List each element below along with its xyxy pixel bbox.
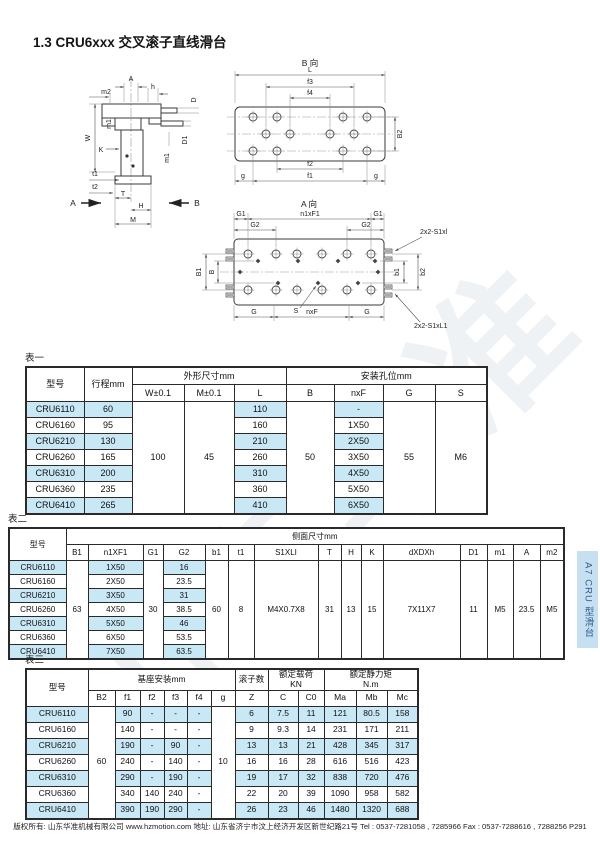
table-section-2: 表二 型号侧面尺寸mmB1n1XF1G1G2b1t1S1XLITHKdXDXhD… [8,511,565,660]
dim-label: D [191,97,198,102]
table-cell: 158 [387,706,418,722]
table-cell: 1090 [324,786,356,802]
table-cell: - [187,770,211,786]
table-cell: 23.5 [163,575,205,589]
table-cell: 32 [298,770,324,786]
table-cell: CRU6260 [26,450,84,466]
table-cell: 21 [298,738,324,754]
table-cell: 958 [356,786,387,802]
table-cell: S [435,385,487,402]
dim-label: h [151,84,155,91]
dim-label: G1 [236,211,245,218]
table-section-1: 表一 型号行程mm外形尺寸mm安装孔位mmW±0.1M±0.1LBnxFGSCR… [25,350,488,515]
table-cell: B2 [88,690,115,706]
table-cell: 16 [163,561,205,575]
table-cell: 30 [143,561,163,660]
table-cell: 428 [324,738,356,754]
spec-table: 型号行程mm外形尺寸mm安装孔位mmW±0.1M±0.1LBnxFGSCRU61… [25,366,488,515]
table-cell: 安装孔位mm [286,367,487,385]
table-cell: B1 [66,545,88,561]
table-cell: 23.5 [513,561,540,660]
table-cell: dXDXh [383,545,460,561]
table-cell: CRU6360 [26,786,88,802]
table-cell: B [286,385,334,402]
table-cell: 8 [228,561,254,660]
dim-label: m1 [164,153,171,163]
table-cell: 1X50 [334,418,383,434]
view-a-title: A 向 [301,199,317,209]
table-cell: 15 [361,561,383,660]
table-cell: 45 [184,402,234,515]
table-row: 型号行程mm外形尺寸mm安装孔位mm [26,367,487,385]
table-cell: CRU6260 [26,754,88,770]
table-cell: 190 [164,770,187,786]
table-cell: 90 [164,738,187,754]
table-cell: 390 [115,802,140,819]
table-cell: 5X50 [334,482,383,498]
table-cell: 4X50 [334,466,383,482]
table-cell: 423 [387,754,418,770]
table-row: CRU6110601004511050-55M6 [26,402,487,418]
table-cell: 60 [205,561,228,660]
table-cell: 4X50 [88,603,143,617]
table-cell: 516 [356,754,387,770]
dim-label: m1 [106,119,113,129]
table-cell: 外形尺寸mm [132,367,286,385]
table-cell: 22 [235,786,268,802]
table-cell: 340 [115,786,140,802]
table-cell: 240 [164,786,187,802]
table-cell: 行程mm [84,367,132,402]
table-cell: 165 [84,450,132,466]
table-cell: m1 [487,545,513,561]
view-b-drawing: B 向 L f3 f4 B2 f2 f1 g g [213,57,408,189]
table-cell: 39 [298,786,324,802]
table-cell: CRU6110 [9,561,66,575]
table-cell: K [361,545,383,561]
table-cell: A [513,545,540,561]
table-cell: CRU6310 [26,466,84,482]
table-cell: M5 [487,561,513,660]
table-label: 表三 [25,652,419,666]
table-cell: CRU6260 [9,603,66,617]
table-cell: 额定载荷 KN [268,669,324,690]
table-cell: 侧面尺寸mm [66,528,564,545]
dim-label: L [308,67,312,74]
table-cell: 6X50 [88,631,143,645]
dim-label: n1xF1 [300,211,320,218]
table-cell: 28 [298,754,324,770]
dim-label: b2 [420,268,427,276]
page-title: 1.3 CRU6xxx 交叉滚子直线滑台 [33,31,227,51]
table-cell: L [234,385,286,402]
table-label: 表二 [8,511,565,525]
table-cell: H [341,545,361,561]
table-row: B1n1XF1G1G2b1t1S1XLITHKdXDXhD1m1Am2 [9,545,564,561]
table-cell: 46 [298,802,324,819]
table-row: 型号基座安装mm滚子数额定载荷 KN额定静力矩 N.m [26,669,418,690]
table-cell: 26 [235,802,268,819]
table-cell: 31 [163,589,205,603]
table-cell: 190 [140,802,164,819]
table-cell: - [140,754,164,770]
table-cell: 16 [235,754,268,770]
table-cell: 型号 [26,367,84,402]
dim-label: W [85,134,92,141]
table-cell: 13 [341,561,361,660]
table-cell: 23 [268,802,298,819]
footer-text: 版权所有: 山东华准机械有限公司 www.hzmotion.com 地址: 山东… [0,821,600,832]
dim-label: m2 [101,89,111,96]
table-cell: 60 [88,706,115,819]
table-row: 型号侧面尺寸mm [9,528,564,545]
table-cell: D1 [460,545,487,561]
dim-label: D1 [182,135,189,144]
table-cell: 310 [234,466,286,482]
table-cell: G2 [163,545,205,561]
table-cell: 6 [235,706,268,722]
table-cell: CRU6110 [26,402,84,418]
table-cell: nxF [334,385,383,402]
dim-label: B1 [196,268,203,277]
view-a-drawing: A 向 G1 n1xF1 G1 G2 G2 B1 B b1 b2 2x2-S1x… [192,197,462,337]
table-cell: CRU6210 [26,738,88,754]
table-row: CRU6110631X503016608M4X0.7X83113157X11X7… [9,561,564,575]
table-cell: - [140,738,164,754]
table-cell: t1 [228,545,254,561]
table-cell: - [334,402,383,418]
table-cell: 38.5 [163,603,205,617]
table-cell: - [164,722,187,738]
dim-label: B2 [397,130,404,139]
table-cell: - [187,754,211,770]
table-cell: 140 [164,754,187,770]
table-cell: 1X50 [88,561,143,575]
table-cell: CRU6210 [26,434,84,450]
table-cell: 9 [235,722,268,738]
table-cell: 53.5 [163,631,205,645]
table-cell: 140 [140,786,164,802]
table-cell: W±0.1 [132,385,184,402]
dim-label: nxF [306,309,318,316]
table-cell: 13 [268,738,298,754]
table-cell: 290 [115,770,140,786]
table-cell: 100 [132,402,184,515]
table-cell: 2X50 [88,575,143,589]
table-cell: 17 [268,770,298,786]
dim-label: f4 [307,90,313,97]
thread-note-bottom: 2x2-S1xL1 [414,323,448,330]
table-cell: 7X11X7 [383,561,460,660]
table-cell: CRU6160 [26,418,84,434]
table-cell: 130 [84,434,132,450]
table-cell: 55 [383,402,435,515]
dim-label: G [251,309,256,316]
dim-label: g [374,173,378,180]
table-cell: 476 [387,770,418,786]
table-cell: - [187,706,211,722]
table-cell: G [383,385,435,402]
table-cell: 1320 [356,802,387,819]
table-cell: b1 [205,545,228,561]
thread-note-top: 2x2-S1xl [420,229,448,236]
dim-label: f3 [307,79,313,86]
table-cell: S1XLI [254,545,318,561]
table-cell: CRU6110 [26,706,88,722]
dim-label: H [138,203,143,210]
table-cell: 16 [268,754,298,770]
dim-label: M [130,217,136,224]
table-cell: f1 [115,690,140,706]
dim-label: A [129,76,134,83]
table-cell: 46 [163,617,205,631]
spec-table: 型号侧面尺寸mmB1n1XF1G1G2b1t1S1XLITHKdXDXhD1m1… [8,527,565,660]
table-2-host: 型号侧面尺寸mmB1n1XF1G1G2b1t1S1XLITHKdXDXhD1m1… [8,527,565,660]
table-cell: 型号 [9,528,66,561]
dim-label: K [99,147,104,154]
table-cell: 14 [298,722,324,738]
table-cell: 582 [387,786,418,802]
table-cell: 235 [84,482,132,498]
table-cell: - [140,770,164,786]
table-cell: - [187,786,211,802]
spec-table: 型号基座安装mm滚子数额定载荷 KN额定静力矩 N.mB2f1f2f3f4gZC… [25,668,419,820]
table-cell: 240 [115,754,140,770]
table-section-3: 表三 型号基座安装mm滚子数额定载荷 KN额定静力矩 N.mB2f1f2f3f4… [25,652,419,820]
table-cell: 滚子数 [235,669,268,690]
dim-label: t2 [92,184,98,191]
dim-label: b1 [394,268,401,276]
table-cell: 63 [66,561,88,660]
table-cell: CRU6210 [9,589,66,603]
dim-label: G1 [373,211,382,218]
section-arrow-a-label: A [70,198,76,208]
table-cell: C [268,690,298,706]
table-cell: CRU6410 [26,802,88,819]
table-cell: f2 [140,690,164,706]
table-cell: Mc [387,690,418,706]
dim-label: g [241,173,245,180]
table-label: 表一 [25,350,488,364]
table-cell: 50 [286,402,334,515]
table-cell: 720 [356,770,387,786]
table-cell: CRU6160 [26,722,88,738]
table-cell: 20 [268,786,298,802]
table-cell: 80.5 [356,706,387,722]
table-cell: 3X50 [334,450,383,466]
table-cell: 260 [234,450,286,466]
table-cell: - [187,722,211,738]
table-3-host: 型号基座安装mm滚子数额定载荷 KN额定静力矩 N.mB2f1f2f3f4gZC… [25,668,419,820]
table-cell: 基座安装mm [88,669,235,690]
table-cell: Ma [324,690,356,706]
table-cell: CRU6310 [9,617,66,631]
table-cell: CRU6160 [9,575,66,589]
table-cell: CRU6360 [9,631,66,645]
table-cell: 60 [84,402,132,418]
table-cell: 90 [115,706,140,722]
table-cell: g [211,690,235,706]
table-cell: 360 [234,482,286,498]
table-cell: G1 [143,545,163,561]
dim-label: G [364,309,369,316]
table-cell: Mb [356,690,387,706]
table-cell: 1480 [324,802,356,819]
table-cell: 9.3 [268,722,298,738]
table-cell: 616 [324,754,356,770]
table-cell: 171 [356,722,387,738]
table-cell: C0 [298,690,324,706]
table-cell: 190 [115,738,140,754]
table-cell: M5 [540,561,564,660]
table-cell: 317 [387,738,418,754]
table-cell: 110 [234,402,286,418]
table-cell: 3X50 [88,589,143,603]
dim-label: T [121,191,126,198]
dim-label: f1 [307,173,313,180]
table-cell: CRU6310 [26,770,88,786]
table-cell: Z [235,690,268,706]
dim-label: G2 [250,222,259,229]
table-cell: 19 [235,770,268,786]
table-cell: 7.5 [268,706,298,722]
side-tab: A7 CRU 型滑台 [577,551,598,648]
table-cell: f4 [187,690,211,706]
table-cell: 121 [324,706,356,722]
dim-label: t1 [92,171,98,178]
table-1-host: 型号行程mm外形尺寸mm安装孔位mmW±0.1M±0.1LBnxFGSCRU61… [25,366,488,515]
table-cell: 160 [234,418,286,434]
dim-label: f2 [307,161,313,168]
table-cell: n1XF1 [88,545,143,561]
dim-label: G2 [361,222,370,229]
table-cell: - [187,802,211,819]
table-cell: 5X50 [88,617,143,631]
table-cell: 345 [356,738,387,754]
table-cell: m2 [540,545,564,561]
table-cell: 11 [298,706,324,722]
table-row: CRU61106090---1067.51112180.5158 [26,706,418,722]
dim-label: B [209,269,216,274]
table-cell: 型号 [26,669,88,706]
table-cell: 10 [211,706,235,819]
table-cell: 838 [324,770,356,786]
table-cell: - [187,738,211,754]
table-cell: 211 [387,722,418,738]
table-cell: - [164,706,187,722]
table-cell: - [140,722,164,738]
table-cell: 11 [460,561,487,660]
table-cell: 231 [324,722,356,738]
table-cell: 688 [387,802,418,819]
table-cell: M6 [435,402,487,515]
table-cell: f3 [164,690,187,706]
dim-label: S [294,308,299,315]
table-cell: 210 [234,434,286,450]
table-cell: 2X50 [334,434,383,450]
table-cell: 140 [115,722,140,738]
table-cell: T [318,545,341,561]
table-cell: M±0.1 [184,385,234,402]
table-cell: 95 [84,418,132,434]
table-cell: 13 [235,738,268,754]
table-cell: 额定静力矩 N.m [324,669,418,690]
table-cell: 290 [164,802,187,819]
table-cell: M4X0.7X8 [254,561,318,660]
table-cell: CRU6360 [26,482,84,498]
table-cell: 31 [318,561,341,660]
table-cell: - [140,706,164,722]
table-cell: 200 [84,466,132,482]
